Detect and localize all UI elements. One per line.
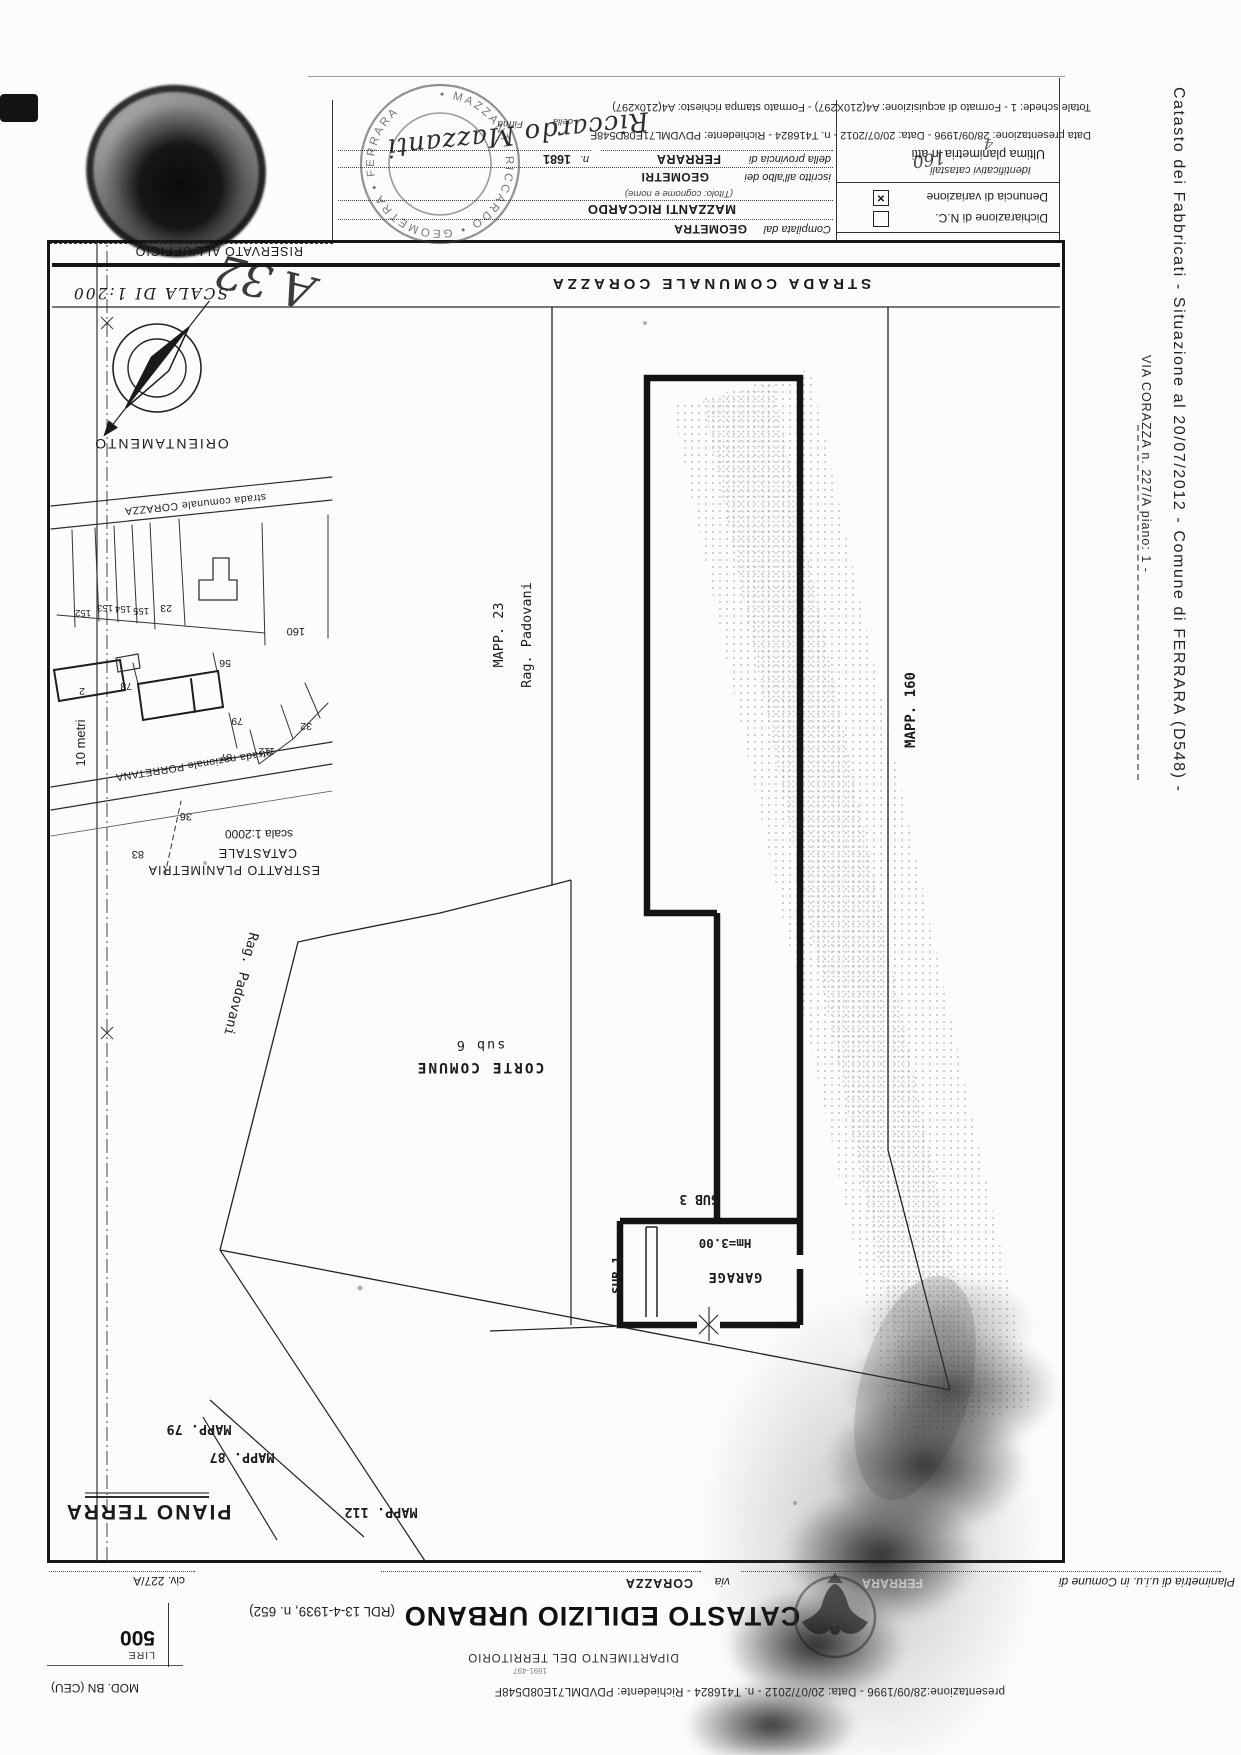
lot-boundary-left: [220, 307, 552, 1250]
courtyard-lines: [490, 880, 620, 1331]
ten-metri-label: 10 metri: [73, 719, 88, 766]
mapp112-label: MAPP. 112: [344, 1504, 417, 1520]
svg-text:• MAZZANTI RICCARDO • GEOMETRA: • MAZZANTI RICCARDO • GEOMETRA • FERRARA: [365, 89, 515, 239]
iscritto-label: iscritto all'albo dei: [745, 171, 831, 183]
mapp79-label: MAPP. 79: [166, 1421, 231, 1437]
compilata-label: Compilata dal: [764, 223, 831, 235]
inset-building-parcel23: [199, 558, 237, 600]
strada-comunale-label: STRADA COMUNALE CORAZZA: [549, 275, 871, 292]
lot-boundary-bottom: [220, 1250, 950, 1390]
scan-edge-mark: [0, 94, 38, 122]
lire-box-line-left: [168, 1603, 169, 1667]
albo-value: GEOMETRI: [641, 170, 709, 184]
inset-caption-1: ESTRATTO PLANIMETRIA: [148, 863, 320, 877]
n-value: 1681: [543, 152, 571, 166]
sub1-label: SUB 1: [609, 1256, 624, 1294]
corte-comune-label: CORTE COMUNE: [416, 1059, 545, 1075]
inset-parcel-32: 32: [300, 720, 312, 732]
orientamento-label: ORIENTAMENTO: [93, 436, 229, 452]
inset-building-1: [138, 671, 223, 720]
mod-bn-label: MOD. BN (CEU): [51, 1681, 179, 1695]
compiler-name: MAZZANTI RICCARDO: [587, 202, 736, 217]
comune-value-ghost: FERRARA: [862, 1576, 923, 1590]
inset-parcel-153: 153: [97, 602, 113, 613]
box-mid-rule: [837, 182, 1060, 183]
rag-padovani-diagonal-label: Rag. Padovani: [220, 931, 261, 1037]
lire-box-line-top: [47, 1665, 183, 1667]
inset-parcel-154: 154: [115, 603, 131, 614]
sub3-label: SUB 3: [679, 1191, 718, 1206]
dotted-rule-1: [741, 1571, 1221, 1573]
mapp23-label: MAPP. 23: [491, 602, 507, 667]
cutoff-bottom-rule: [308, 76, 1065, 77]
inset-parcel-79: 79: [231, 715, 243, 727]
provincia-dotted: [601, 150, 833, 152]
via-value: CORAZZA: [625, 1576, 693, 1590]
rdl-reference: (RDL 13-4-1939, n. 652): [249, 1604, 395, 1619]
provincia-label: della provincia di: [749, 153, 831, 165]
denuncia-checkbox-checked: ×: [873, 190, 889, 206]
provincia-value: FERRARA: [656, 152, 721, 166]
inset-parcel-23: 23: [160, 602, 172, 614]
dotted-rule-3: [49, 1571, 195, 1573]
stamp-ring-text: • MAZZANTI RICCARDO • GEOMETRA • FERRARA: [365, 89, 515, 239]
geometra-round-stamp: • MAZZANTI RICCARDO • GEOMETRA • FERRARA: [354, 78, 526, 250]
inset-parcel-83: 83: [132, 848, 144, 860]
inset-road2-label: strada comunale CORAZZA: [124, 491, 267, 517]
titolo-note: (Titolo: cognome e nome): [625, 188, 733, 199]
margin-address-line: VIA CORAZZA n. 227/A piano: 1 -: [1139, 355, 1153, 573]
hm-label: Hm=3.00: [699, 1236, 752, 1251]
margin-micro-text-illegible: [1137, 425, 1140, 780]
margin-reference-line: Catasto dei Fabbricati - Situazione al 2…: [1169, 87, 1187, 793]
inset-building-2: [54, 660, 125, 701]
garage-partition-wall: [646, 1227, 657, 1317]
dotted-rule-2: [381, 1571, 701, 1573]
garage-label: GARAGE: [708, 1269, 763, 1285]
inset-parcel-36: 36: [180, 810, 192, 822]
sub6-label: sub 6: [455, 1037, 506, 1053]
data-presentazione-line: Data presentazione: 28/09/1996 - Data: 2…: [590, 129, 1091, 141]
inset-parcel-56: 56: [219, 657, 231, 669]
inset-parcel-78: 78: [120, 680, 132, 692]
mapp160-label: MAPP. 160: [903, 672, 919, 748]
lire-label: LIRE: [128, 1649, 155, 1661]
via-label: via: [715, 1575, 730, 1589]
inset-caption-2: CATASTALE: [218, 846, 297, 860]
lire-value: 500: [120, 1625, 155, 1649]
form-divider-right: [332, 100, 333, 240]
n-label: n.: [580, 153, 589, 165]
geometra-value: GEOMETRA: [674, 222, 747, 236]
page-title: CATASTO EDILIZIO URBANO: [401, 1600, 803, 1631]
inset-parcel-160: 160: [287, 625, 305, 637]
box-top-rule: [837, 232, 1060, 233]
scanned-cadastral-sheet: Catasto dei Fabbricati - Situazione al 2…: [0, 0, 1241, 1755]
inset-parcel-112: 112: [258, 745, 275, 757]
inset-parcel-2: 2: [79, 685, 85, 697]
dipartimento-label: DIPARTIMENTO DEL TERRITORIO: [463, 1651, 683, 1663]
door-opening-ticks: [699, 1307, 718, 1341]
dichiarazione-label: Dichiarazione di N.C.: [935, 211, 1048, 225]
inset-cadastral-map: ESTRATTO PLANIMETRIA CATASTALE scala 1:2…: [51, 477, 332, 877]
totale-schede-line: Totale schede: 1 - Formato di acquisizio…: [612, 101, 1091, 113]
small-ref-number: 1691-497: [513, 1666, 547, 1675]
inset-parcel-87: 87: [220, 751, 232, 763]
compass-icon: [95, 294, 218, 443]
mapp87-label: MAPP. 87: [209, 1449, 274, 1465]
inset-caption-3: scala 1:2000: [225, 827, 293, 841]
planimetria-label: Planimetria di u.i.u. in Comune di: [1059, 1575, 1235, 1589]
inset-parcel-152: 152: [75, 607, 91, 618]
form-divider-left: [836, 100, 837, 240]
dichiarazione-checkbox: [873, 211, 889, 227]
floor-plan-drawing: 10 metri STRADA COMUNALE CORAZZA PIANO T…: [47, 240, 1065, 1563]
rag-padovani-vertical-label: Rag. Padovani: [519, 582, 535, 688]
denuncia-label: Denuncia di variazione: [927, 190, 1048, 204]
civ-value: civ. 227/A: [133, 1574, 185, 1588]
piano-terra-label: PIANO TERRA: [65, 1500, 232, 1523]
inset-parcel-155: 155: [133, 605, 149, 616]
presentazione-line: presentazione:28/09/1996 - Data: 20/07/2…: [495, 1685, 1005, 1697]
scala-label: SCALA DI 1:200: [72, 284, 228, 302]
